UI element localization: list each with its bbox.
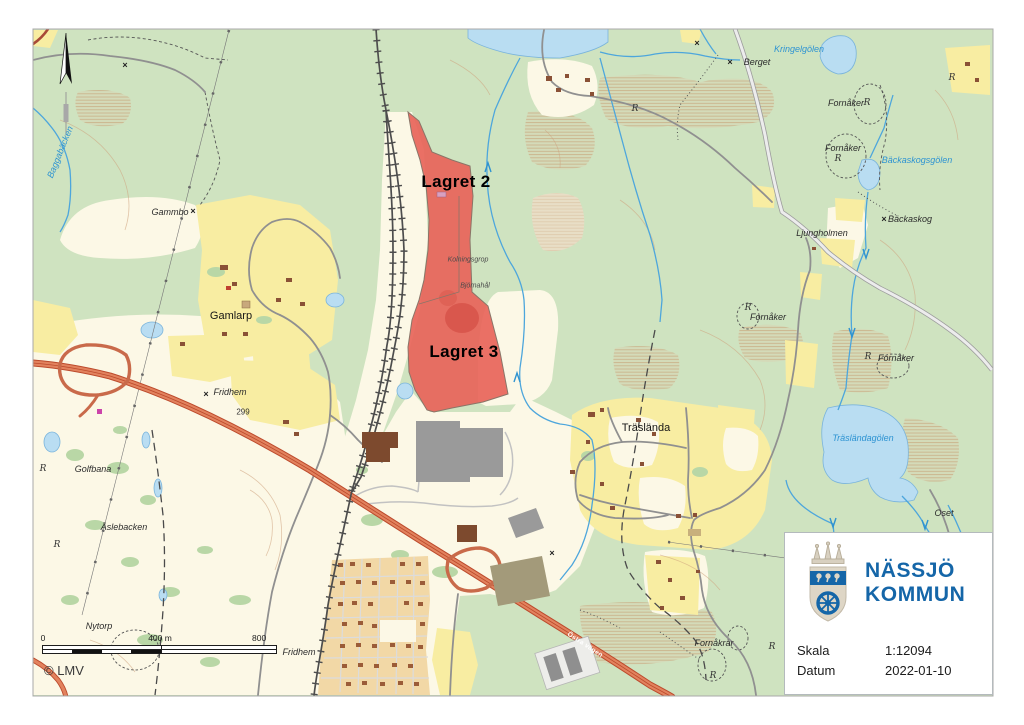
scale-row: Skala 1:12094 (797, 643, 987, 658)
residential-area (318, 556, 430, 695)
copyright-text: © LMV (44, 663, 84, 678)
map-document-page: BaggabäckenGammboGamlarpGolfbanaÅsleback… (0, 0, 1024, 725)
date-label: Datum (797, 663, 835, 678)
scale-label: Skala (797, 643, 830, 658)
scale-value: 1:12094 (885, 643, 932, 658)
date-value: 2022-01-10 (885, 663, 952, 678)
shield-icon (810, 567, 846, 621)
municipality-name-line1: NÄSSJÖ (865, 559, 965, 583)
wheel-icon (818, 593, 838, 613)
date-row: Datum 2022-01-10 (797, 663, 987, 678)
municipality-name-line2: KOMMUN (865, 583, 965, 607)
info-box: NÄSSJÖ KOMMUN Skala 1:12094 Datum 2022-0… (784, 532, 993, 695)
scale-bar-graphic (42, 645, 277, 654)
scale-bar: 0 400 m 800 m (40, 633, 285, 663)
municipality-name: NÄSSJÖ KOMMUN (865, 559, 965, 607)
poi-magenta-marker (97, 409, 102, 414)
crown-icon (812, 542, 844, 564)
municipality-logo (805, 541, 851, 629)
scale-tick-400: 400 m (148, 633, 172, 643)
scale-tick-0: 0 (41, 633, 46, 643)
